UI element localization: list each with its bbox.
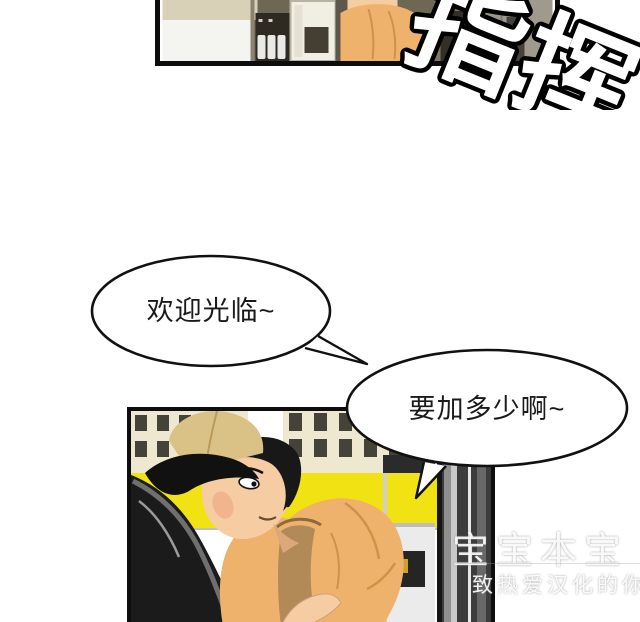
sfx-layer: 指挥 bbox=[385, 0, 640, 110]
bubble-1-tail bbox=[305, 336, 367, 364]
bubble-1-text: 欢迎光临~ bbox=[147, 296, 276, 326]
bubble-2-text: 要加多少啊~ bbox=[409, 394, 566, 424]
bubble-2-tail bbox=[416, 462, 446, 498]
sfx-text: 指挥 bbox=[391, 0, 640, 110]
comic-page: 欢迎光临~ 要加多少啊~ 指挥 宝宝本宝 致热爱汉化的你 bbox=[0, 0, 640, 622]
